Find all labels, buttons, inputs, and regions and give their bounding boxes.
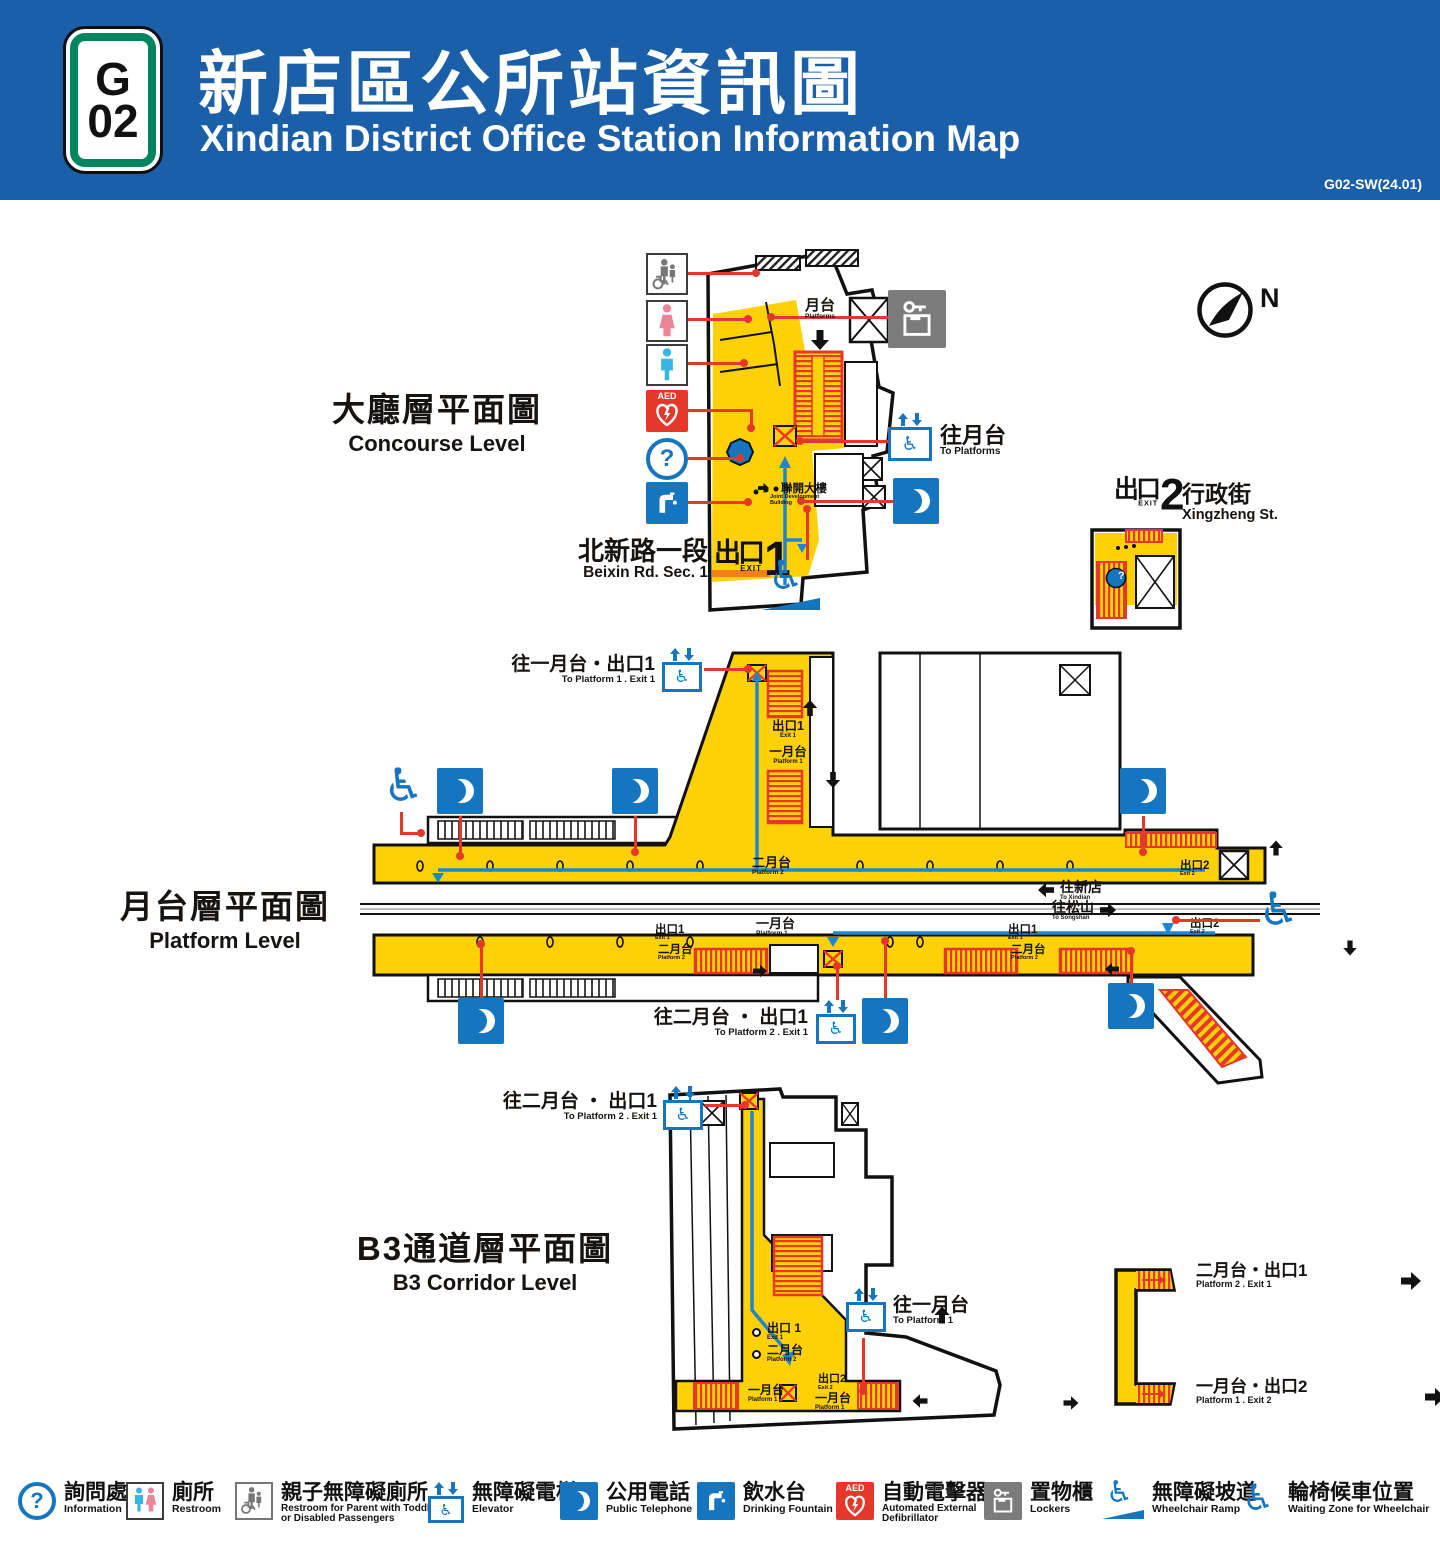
- leader-dot: [744, 315, 752, 323]
- elevator-icon: [662, 648, 702, 692]
- station-information-map: G 02 新店區公所站資訊圖 Xindian District Office S…: [0, 0, 1440, 1548]
- family-restroom-icon: [646, 253, 688, 295]
- phone-icon: [612, 768, 658, 814]
- header-banner: G 02 新店區公所站資訊圖 Xindian District Office S…: [0, 0, 1440, 200]
- leader-dot: [736, 454, 744, 462]
- platform2-label: 二月台 Platform 2: [752, 856, 791, 876]
- platforms-zh: 月台: [805, 298, 835, 314]
- aed-icon: AED: [836, 1482, 874, 1520]
- leader-dot: [859, 1387, 867, 1395]
- leader-line: [884, 940, 887, 998]
- legend-restroom: 廁所 Restroom: [126, 1482, 221, 1520]
- corridor-bottom-label: 一月台・出口2 Platform 1 . Exit 2: [1196, 1378, 1307, 1405]
- wheelchair-waiting-icon: [1258, 886, 1299, 932]
- to-songshan-label: 往松山 To Songshan: [1052, 900, 1118, 921]
- elevator-icon: [428, 1482, 464, 1523]
- station-code-ring: G 02: [70, 33, 156, 167]
- drinking-fountain-icon: [697, 1482, 735, 1520]
- exit2-mini-map: [1088, 526, 1183, 631]
- leader-line: [1142, 816, 1145, 850]
- leader-dot: [477, 940, 485, 948]
- leader-dot: [1127, 947, 1135, 955]
- lower-right-exit1-label: 出口1 Exit 1: [1008, 924, 1037, 942]
- legend-wheelchair-waiting: 輪椅候車位置 Waiting Zone for Wheelchair: [1242, 1482, 1429, 1522]
- platform-title-zh: 月台層平面圖: [120, 890, 330, 925]
- page-title-zh: 新店區公所站資訊圖: [198, 28, 864, 129]
- elevator-icon: [888, 413, 932, 461]
- upper-exit2-label: 出口2 Exit 2: [1180, 860, 1209, 878]
- right-arrow-icon: [758, 483, 769, 493]
- leader-dot: [881, 937, 889, 945]
- family-restroom-icon: [235, 1482, 273, 1520]
- xingzheng-street-label: 行政街 Xingzheng St.: [1182, 482, 1278, 523]
- b3-title-en: B3 Corridor Level: [393, 1271, 578, 1294]
- leader-line: [836, 966, 839, 1000]
- leader-dot: [803, 505, 811, 513]
- leader-dot: [740, 359, 748, 367]
- legend-lockers: 置物櫃 Lockers: [984, 1482, 1093, 1520]
- stem-exit1-label: 出口1 Exit 1: [762, 720, 814, 739]
- right-arrow-icon: [1100, 903, 1116, 917]
- question-glyph: ?: [660, 445, 675, 473]
- b3-side-corridor: [1108, 1262, 1198, 1412]
- to-platform2-exit1-label: 往二月台 ・ 出口1 To Platform 2 . Exit 1: [640, 1008, 808, 1038]
- left-arrow-icon: [912, 1394, 927, 1408]
- leader-dot: [1172, 916, 1180, 924]
- phone-icon: [1120, 768, 1166, 814]
- information-icon: ?: [646, 438, 688, 480]
- platforms-en: Platforms: [805, 314, 835, 321]
- b3-to-platform1-label: 往一月台 To Platform 1: [893, 1296, 969, 1326]
- leader-line: [688, 272, 754, 275]
- left-arrow-icon: [1038, 883, 1054, 897]
- phone-icon: [560, 1482, 598, 1520]
- elevator-icon: [816, 1000, 856, 1044]
- lower-platform2-label: 二月台 Platform 2: [658, 944, 693, 962]
- exit-word: 出口: [714, 541, 762, 565]
- left-arrow-icon: [1105, 963, 1119, 976]
- info-icon: ?: [18, 1482, 56, 1520]
- beixin-road-label: 北新路一段 Beixin Rd. Sec. 1: [560, 538, 708, 582]
- platform-title-en: Platform Level: [149, 929, 301, 952]
- down-arrow-icon: [826, 772, 840, 788]
- legend-elevator: 無障礙電梯 Elevator: [428, 1482, 577, 1523]
- leader-line: [800, 440, 888, 443]
- b3-platform1-right-label: 一月台 Platform 1: [815, 1392, 851, 1411]
- leader-line: [634, 816, 637, 850]
- b3-title-zh: B3通道層平面圖: [357, 1232, 613, 1267]
- up-arrow-icon: [803, 700, 817, 716]
- legend-family-restroom: 親子無障礙廁所 Restroom for Parent with Toddler…: [235, 1482, 439, 1525]
- wheelchair-ramp-icon: [768, 556, 804, 596]
- legend-drinking-fountain: 飲水台 Drinking Fountain: [697, 1482, 833, 1520]
- down-arrow-icon: [811, 330, 829, 350]
- b3-section-title: B3通道層平面圖 B3 Corridor Level: [295, 1232, 675, 1294]
- platform-section-title: 月台層平面圖 Platform Level: [60, 890, 390, 952]
- map-version-code: G02-SW(24.01): [1324, 176, 1422, 192]
- beixin-road-en: Beixin Rd. Sec. 1: [583, 565, 708, 581]
- lockers-icon: [984, 1482, 1022, 1520]
- drinking-fountain-icon: [646, 482, 688, 524]
- phone-icon: [862, 998, 908, 1044]
- down-arrow-icon: [1343, 941, 1357, 956]
- elevator-icon: [846, 1288, 886, 1332]
- leader-line: [704, 668, 746, 671]
- leader-line: [750, 409, 753, 425]
- xingzheng-en: Xingzheng St.: [1182, 508, 1278, 523]
- platform1-label: 一月台 Platform 1: [756, 917, 795, 937]
- beixin-road-zh: 北新路一段: [578, 538, 708, 565]
- compass-north-label: N: [1260, 283, 1280, 314]
- exit2-logo: 出口 EXIT 2: [1114, 478, 1185, 512]
- station-code-badge: G 02: [63, 26, 163, 174]
- to-xindian-label: 往新店 To Xindian: [1036, 880, 1102, 901]
- leader-dot: [631, 848, 639, 856]
- leader-dot: [456, 852, 464, 860]
- station-number: 02: [87, 100, 138, 142]
- to-platforms-label: 往月台 To Platforms: [940, 424, 1006, 458]
- leader-line: [862, 1338, 865, 1390]
- phone-icon: [1108, 983, 1154, 1029]
- leader-line: [1175, 919, 1260, 922]
- leader-dot: [741, 1101, 749, 1109]
- legend-information: ? 詢問處 Information: [18, 1482, 127, 1520]
- phone-icon: [893, 478, 939, 524]
- compass-icon: [1196, 281, 1254, 339]
- right-arrow-icon: [1064, 1396, 1079, 1410]
- leader-dot: [744, 665, 752, 673]
- leader-dot: [833, 962, 841, 970]
- wheelchair-ramp-icon: [1102, 1482, 1144, 1522]
- leader-dot: [747, 424, 755, 432]
- joint-building-en: Joint Development Building: [770, 494, 819, 506]
- phone-icon: [458, 998, 504, 1044]
- right-arrow-icon: [1401, 1272, 1421, 1290]
- ramp-wedge: [762, 598, 820, 610]
- lower-exit1-label: 出口1 Exit 1: [655, 924, 684, 942]
- leader-line: [480, 944, 483, 998]
- legend-aed: AED 自動電擊器 Automated External Defibrillat…: [836, 1482, 987, 1525]
- b3-platform1-left-label: 一月台 Platform 1: [748, 1384, 784, 1403]
- leader-line: [688, 501, 746, 504]
- phone-icon: [437, 768, 483, 814]
- b3-exit2-label: 出口2 Exit 2: [818, 1374, 846, 1391]
- to-platform1-exit1-label: 往一月台・出口1 To Platform 1 . Exit 1: [500, 655, 655, 685]
- leader-dot: [744, 498, 752, 506]
- men-restroom-icon: [646, 344, 688, 386]
- b3-exit1-label: 出口 1 Exit 1: [767, 1322, 801, 1341]
- legend-wheelchair-ramp: 無障礙坡道 Wheelchair Ramp: [1102, 1482, 1257, 1522]
- line-letter: G: [95, 58, 131, 100]
- concourse-title-zh: 大廳層平面圖: [332, 393, 542, 428]
- leader-line: [705, 1104, 743, 1107]
- to-platforms-zh: 往月台: [940, 424, 1006, 447]
- aed-label: AED: [657, 392, 676, 401]
- concourse-title-en: Concourse Level: [348, 432, 525, 455]
- legend-public-telephone: 公用電話 Public Telephone: [560, 1482, 692, 1520]
- restroom-icon: [126, 1482, 164, 1520]
- right-arrow-icon: [753, 965, 767, 978]
- leader-dot: [1139, 848, 1147, 856]
- right-arrow-icon: [1425, 1388, 1440, 1406]
- lockers-icon: [888, 290, 946, 348]
- leader-line: [459, 816, 462, 854]
- leader-line: [688, 362, 742, 365]
- exit-caption: EXIT: [740, 565, 762, 572]
- elevator-arrows: [898, 413, 922, 426]
- leader-line: [688, 318, 746, 321]
- to-platforms-en: To Platforms: [940, 447, 1006, 458]
- leader-line: [688, 409, 752, 412]
- women-restroom-icon: [646, 300, 688, 342]
- corridor-top-label: 二月台・出口1 Platform 2 . Exit 1: [1196, 1262, 1307, 1289]
- wheelchair-icon: [1242, 1482, 1280, 1522]
- elevator-icon: [663, 1086, 703, 1130]
- up-arrow-icon: [1270, 841, 1284, 856]
- leader-dot: [417, 829, 425, 837]
- wheelchair-glyph: [901, 433, 918, 456]
- leader-dot: [796, 437, 804, 445]
- aed-icon: AED: [646, 390, 688, 432]
- stem-platform1-label: 一月台 Platform 1: [762, 746, 814, 765]
- b3-floor-plan: [660, 1085, 1100, 1435]
- lower-right-platform2-label: 二月台 Platform 2: [1011, 944, 1046, 962]
- wheelchair-waiting-icon: [383, 762, 424, 808]
- page-title-en: Xindian District Office Station Informat…: [200, 118, 1020, 160]
- bullet-circle: [752, 1350, 761, 1359]
- platforms-label: 月台 Platforms: [795, 298, 845, 321]
- leader-dot: [752, 269, 760, 277]
- xingzheng-zh: 行政街: [1182, 482, 1278, 506]
- bullet-circle: [752, 1328, 761, 1337]
- leader-line: [688, 457, 738, 460]
- b3-to-platform2-exit1-label: 往二月台 ・ 出口1 To Platform 2 . Exit 1: [505, 1092, 657, 1122]
- leader-dot: [767, 313, 775, 321]
- b3-platform2-label: 二月台 Platform 2: [767, 1344, 803, 1363]
- leader-line: [806, 508, 809, 560]
- exit2-number: 2: [1160, 478, 1185, 512]
- mini-info-glyph: ?: [1118, 570, 1125, 582]
- leader-line: [400, 812, 403, 834]
